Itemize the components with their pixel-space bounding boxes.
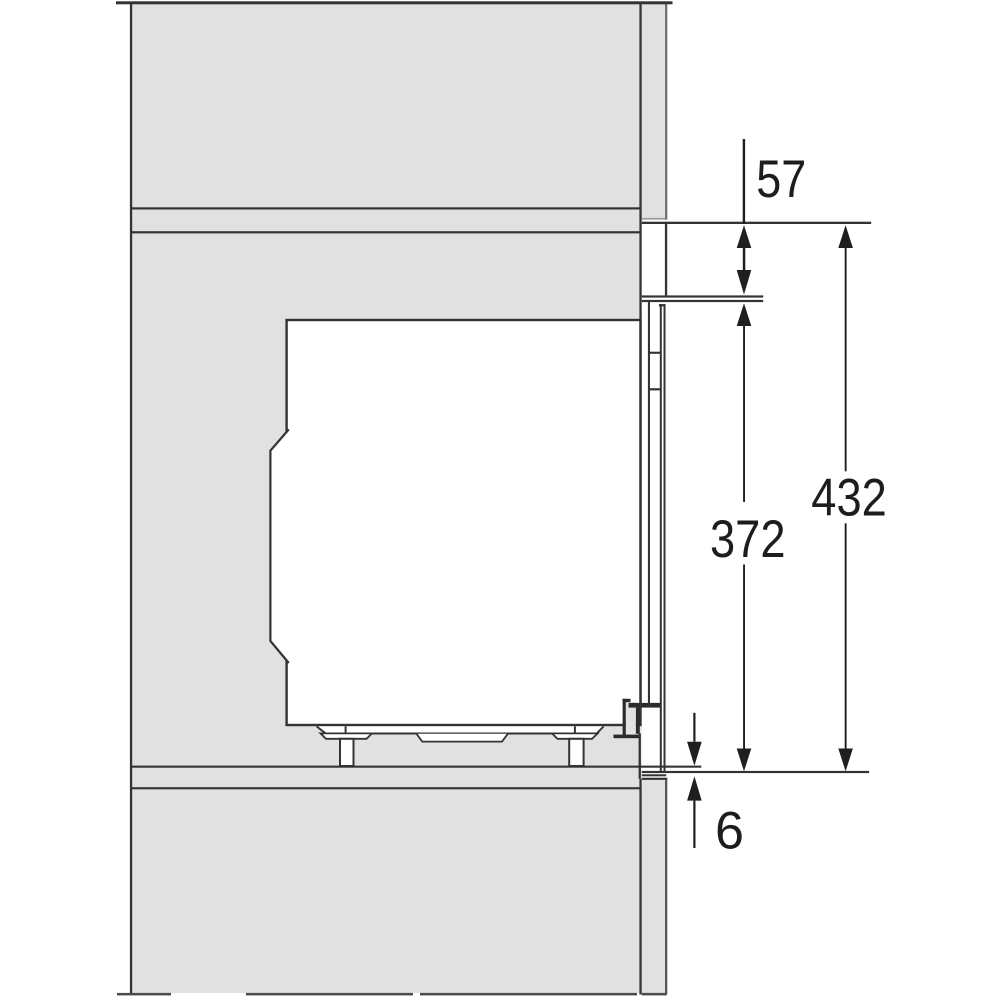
svg-text:432: 432 <box>811 468 887 527</box>
svg-text:6: 6 <box>715 802 744 861</box>
svg-text:57: 57 <box>756 150 806 209</box>
svg-text:372: 372 <box>710 510 786 569</box>
